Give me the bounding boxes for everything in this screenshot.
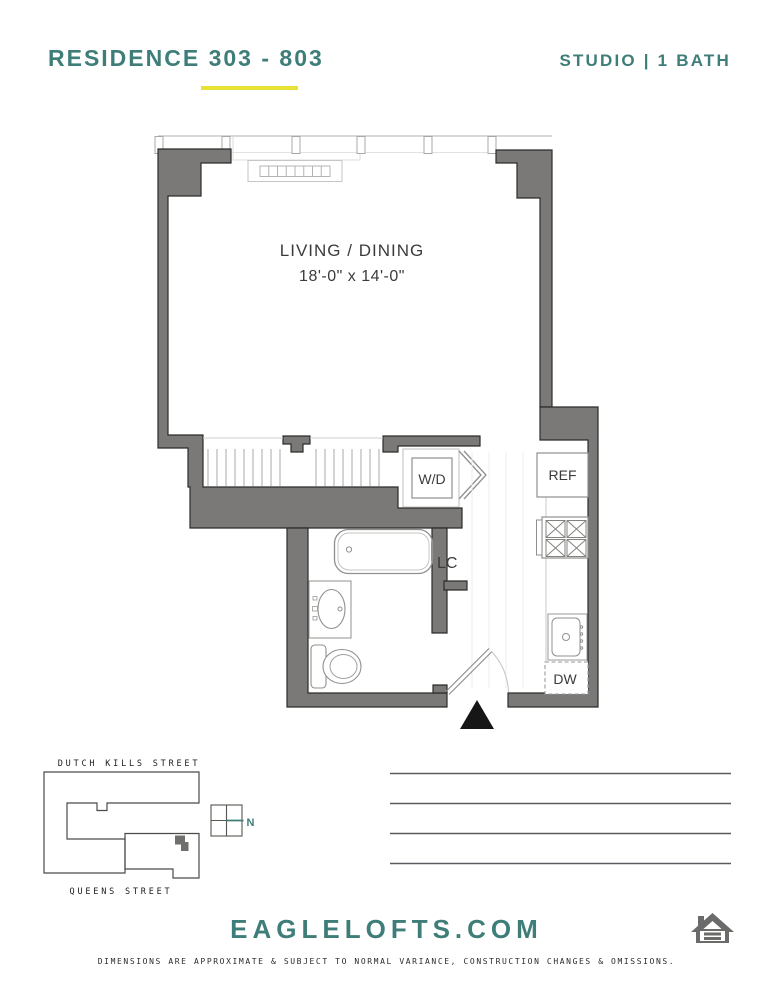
bathroom [309,530,433,689]
street-name-top: DUTCH KILLS STREET [58,759,201,769]
dishwasher-label: DW [553,671,577,687]
stove [537,517,589,558]
kitchen: REF [537,453,589,694]
toilet [311,645,361,688]
wall-door-hinge-stub [433,685,447,693]
kitchen-sink [548,614,587,660]
room-label: LIVING / DINING [280,241,424,260]
dishwasher-box: DW [545,662,588,694]
floor-plan-graphic: W/D [0,0,773,1000]
entry-door [446,649,509,695]
floor-plan-page: RESIDENCE 303 - 803 STUDIO | 1 BATH [0,0,773,1000]
building-outline [44,772,199,878]
washer-dryer-label: W/D [418,471,445,487]
floor-plan: W/D [155,136,598,729]
walls [158,149,598,707]
refrigerator-label: REF [549,467,577,483]
wall-right-upper [496,150,552,407]
wall-linen-closet-stub [444,581,467,590]
sink-vanity [309,581,351,638]
bathtub [335,530,433,574]
street-name-bottom: QUEENS STREET [70,887,173,897]
hallway-floor-lines [472,452,523,688]
room-dimensions: 18'-0" x 14'-0" [299,268,405,285]
linen-closet-label: LC [437,555,457,572]
compass: N [211,805,255,836]
website-link[interactable]: EAGLELOFTS.COM [0,914,773,945]
unit-location-marker [175,836,189,852]
refrigerator-box: REF [537,453,588,497]
entry-marker [460,700,494,729]
washer-dryer-closet: W/D [403,449,486,507]
radiator [248,161,342,182]
disclaimer-text: DIMENSIONS ARE APPROXIMATE & SUBJECT TO … [0,957,773,966]
site-map: DUTCH KILLS STREET N QUEENS STREET [44,759,255,897]
compass-north-label: N [247,817,255,829]
note-lines [390,774,731,864]
wall-closet-pier [283,436,310,452]
